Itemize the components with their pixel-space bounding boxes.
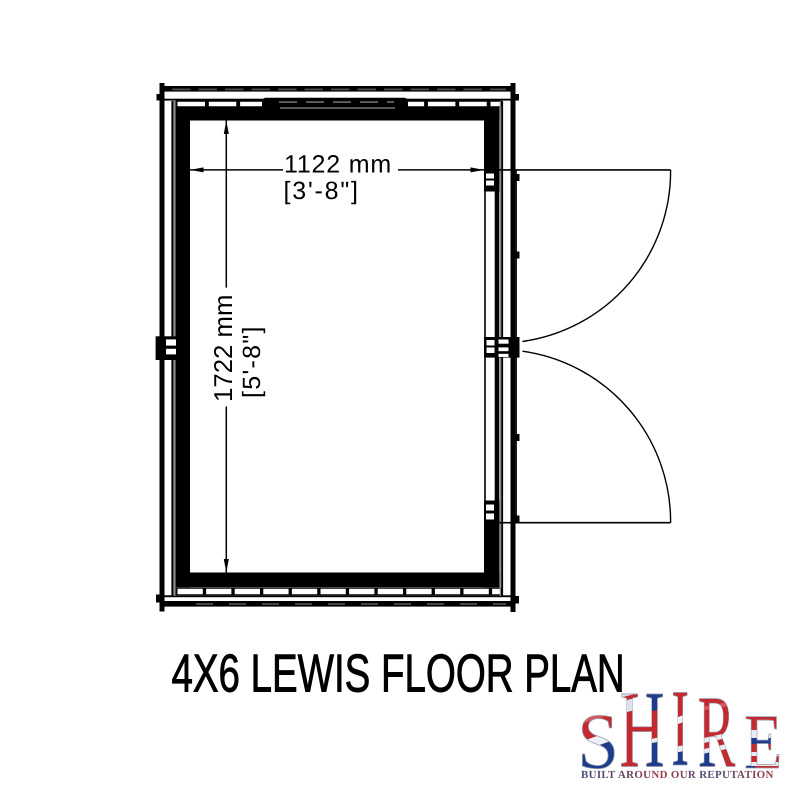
svg-text:BUILT AROUND OUR REPUTATION: BUILT AROUND OUR REPUTATION	[581, 769, 774, 781]
svg-text:[3'-8"]: [3'-8"]	[284, 177, 360, 205]
svg-text:[5'-8"]: [5'-8"]	[238, 325, 266, 398]
svg-text:1122 mm: 1122 mm	[284, 151, 392, 179]
svg-text:4X6 LEWIS FLOOR PLAN: 4X6 LEWIS FLOOR PLAN	[172, 645, 625, 704]
svg-text:1722 mm: 1722 mm	[210, 294, 238, 402]
